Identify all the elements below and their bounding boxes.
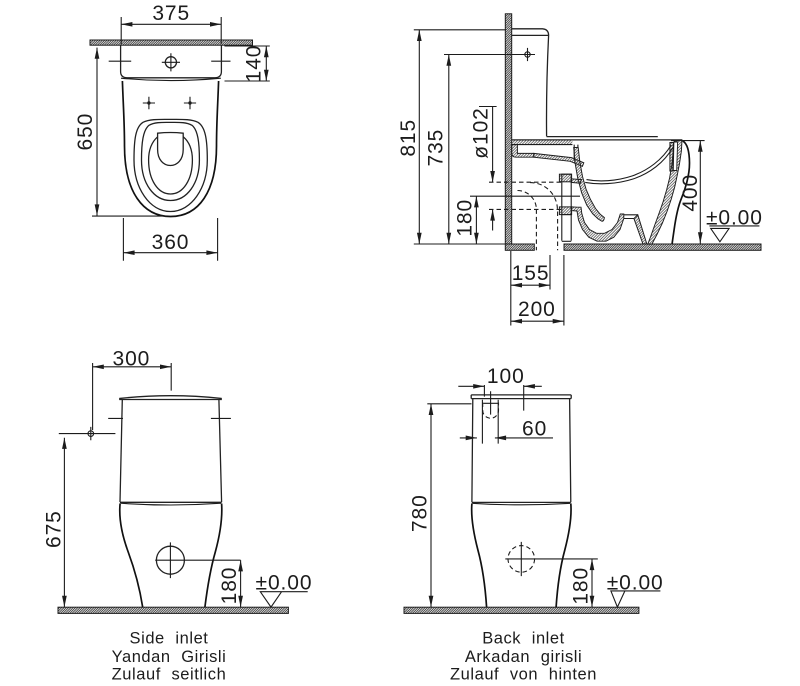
svg-text:155: 155: [512, 262, 550, 285]
svg-text:675: 675: [43, 510, 66, 548]
svg-text:200: 200: [518, 298, 556, 321]
svg-text:140: 140: [243, 45, 266, 83]
svg-text:100: 100: [487, 365, 525, 388]
svg-text:Back inlet: Back inlet: [482, 629, 565, 647]
svg-text:Side inlet: Side inlet: [130, 629, 209, 647]
svg-text:180: 180: [570, 567, 593, 605]
svg-text:60: 60: [522, 418, 547, 441]
svg-text:735: 735: [424, 129, 447, 167]
svg-text:±0.00: ±0.00: [256, 572, 313, 595]
svg-text:180: 180: [454, 199, 477, 237]
svg-text:Yandan Girisli: Yandan Girisli: [112, 648, 227, 666]
svg-text:400: 400: [679, 174, 702, 212]
svg-text:780: 780: [408, 494, 431, 532]
svg-text:815: 815: [397, 119, 420, 157]
svg-text:180: 180: [218, 567, 241, 605]
svg-text:ø102: ø102: [470, 107, 493, 158]
svg-text:360: 360: [152, 231, 190, 254]
svg-text:650: 650: [74, 113, 97, 151]
svg-text:Zulauf seitlich: Zulauf seitlich: [112, 665, 227, 683]
svg-text:Arkadan girisli: Arkadan girisli: [465, 648, 582, 666]
svg-text:300: 300: [113, 347, 151, 370]
svg-text:Zulauf von hinten: Zulauf von hinten: [450, 665, 597, 683]
svg-text:375: 375: [152, 2, 190, 25]
